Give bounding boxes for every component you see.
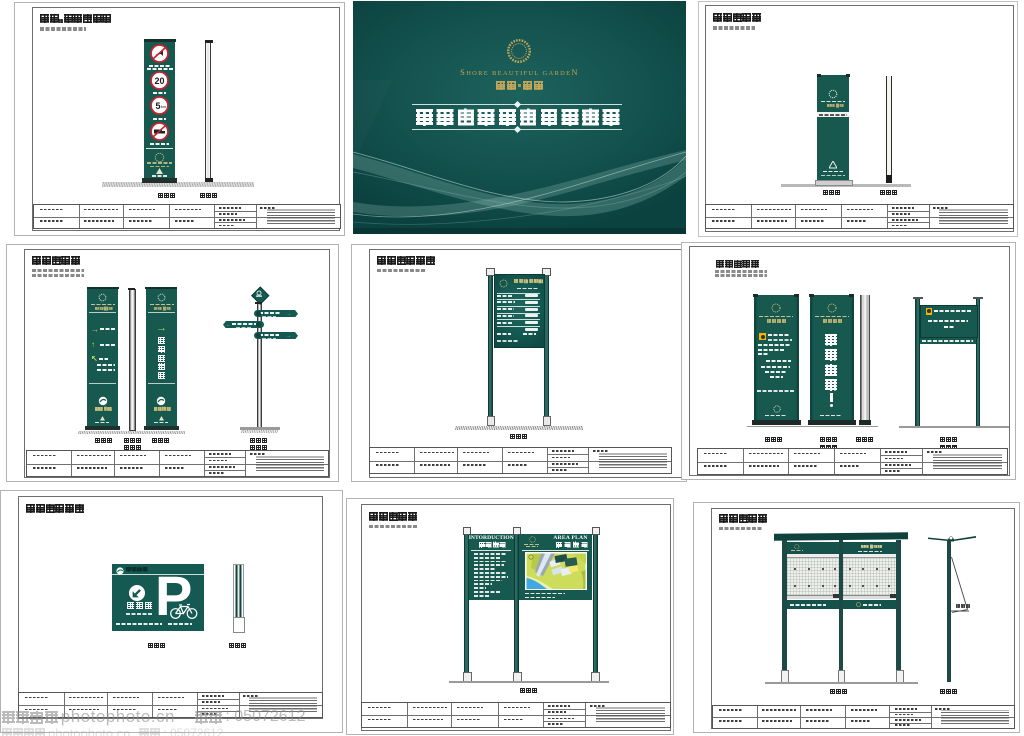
svg-text:km: km [161, 104, 167, 109]
svg-text:20: 20 [154, 76, 164, 86]
svg-text:5: 5 [155, 101, 160, 111]
